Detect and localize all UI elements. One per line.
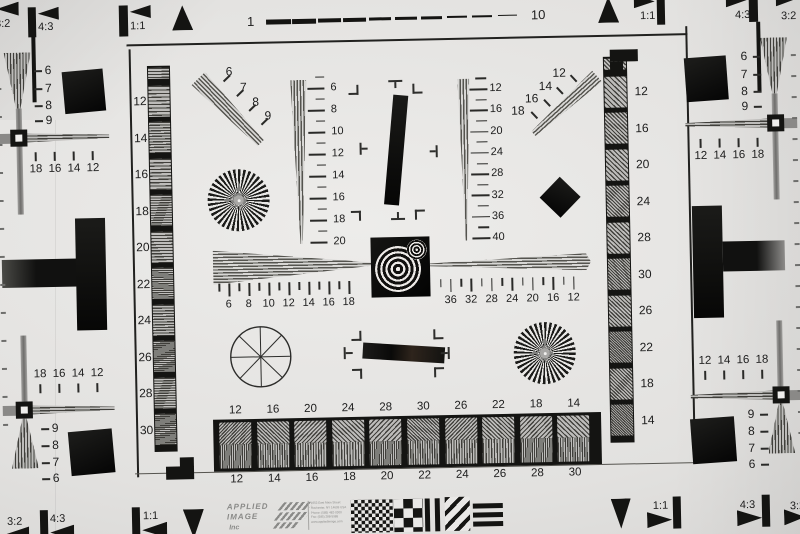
diagonal-wedge-upper-left (191, 71, 269, 150)
ladder-label: 12 (133, 94, 147, 108)
scale-label: 40 (492, 231, 504, 243)
scale-label: 16 (490, 103, 502, 115)
scale-tick (472, 195, 490, 197)
logo-address-line: Rochester, NY 14609 USA (311, 506, 347, 510)
scale-label: 10 (262, 298, 274, 310)
aspect-bar (119, 5, 129, 36)
corner-number-dash (42, 462, 50, 464)
scale-tick (552, 277, 554, 290)
cross-scale-tick (761, 370, 763, 379)
diag-scale-tick (531, 111, 538, 119)
scale-dash (369, 17, 391, 21)
scale-dash (318, 18, 342, 23)
t-shape-left-stem (2, 258, 79, 288)
logo-address-line: Fax: (585) 288-5989 (311, 516, 338, 520)
t-shape-right-bar (692, 206, 724, 319)
ladder-cell (606, 149, 629, 180)
scale-tick (258, 283, 260, 291)
scale-label: 12 (282, 297, 294, 309)
scale-tick (476, 99, 487, 101)
bar-label-top: 16 (266, 403, 279, 415)
scale-tick (309, 153, 326, 155)
bar-label-top: 28 (379, 401, 392, 413)
horizontal-bar-pattern (473, 503, 503, 509)
corner-number-dash (42, 445, 50, 447)
ladder-cell (152, 268, 174, 299)
t-mark (362, 148, 368, 150)
scale-tick (470, 109, 488, 111)
bar-cell-bottom (332, 442, 364, 467)
ladder-label: 26 (138, 350, 152, 364)
bracket-mark (359, 331, 361, 341)
diag-scale-label: 12 (552, 66, 566, 80)
aspect-triangle-icon (130, 5, 151, 18)
scale-label: 12 (332, 147, 344, 159)
aspect-label-11: 1:1 (143, 510, 159, 522)
ladder-key-right2 (610, 61, 623, 72)
corner-number: 6 (44, 63, 51, 77)
cross-scale-label: 18 (29, 163, 42, 175)
aspect-triangle-icon (38, 7, 59, 20)
edge-tick (791, 54, 796, 56)
t-mark (430, 150, 436, 152)
aspect-triangle-icon (634, 0, 655, 8)
vertical-wedge-center-right (456, 79, 473, 241)
scale-tick (470, 131, 488, 133)
corner-number: 9 (52, 421, 59, 435)
scale-tick (472, 237, 490, 239)
edge-tick (794, 222, 799, 224)
diag-scale-tick (570, 74, 577, 82)
up-triangle-icon (598, 0, 620, 23)
ladder-label: 30 (638, 266, 652, 280)
corner-number: 6 (53, 471, 60, 485)
top-ruler-start: 1 (247, 14, 255, 29)
ladder-cell (611, 404, 634, 435)
scale-label: 12 (567, 291, 579, 303)
cross-scale-label: 14 (67, 162, 80, 174)
edge-tick (0, 284, 5, 286)
edge-tick (792, 96, 797, 98)
corner-number: 8 (741, 84, 748, 98)
scale-tick (542, 277, 544, 285)
edge-tick (3, 396, 8, 398)
bar-label-bottom: 30 (569, 466, 582, 478)
aspect-label-43: 4:3 (38, 21, 54, 33)
chart-sheet: 3:2 4:3 1:1 1:1 4:3 3:2 1 10 3:2 4:3 1:1 (0, 0, 800, 534)
cross-center-square-inner (21, 406, 28, 413)
ladder-label: 12 (634, 84, 648, 98)
aspect-triangle-icon (50, 525, 74, 534)
scale-tick (288, 282, 290, 295)
scale-tick (471, 173, 489, 175)
bar-label-bottom: 26 (493, 468, 506, 480)
corner-number: 7 (748, 441, 755, 455)
scale-label: 10 (331, 125, 343, 137)
ladder-key-left2 (180, 457, 194, 467)
scale-label: 20 (526, 292, 538, 304)
scale-tick (481, 278, 483, 286)
bar-label-bottom: 12 (230, 473, 243, 485)
ladder-label: 22 (137, 277, 151, 291)
t-mark (448, 347, 450, 359)
slanted-bar-target-lower (362, 343, 445, 364)
bar-label-bottom: 18 (343, 471, 356, 483)
ladder-label: 20 (636, 157, 650, 171)
ladder-cell (153, 304, 175, 335)
top-ruler-end: 10 (531, 7, 546, 22)
bar-label-bottom: 16 (305, 472, 318, 484)
scale-tick (460, 279, 462, 287)
corner-number-dash (42, 478, 50, 480)
scale-tick (308, 131, 325, 133)
scale-tick (475, 78, 486, 80)
bar-cell-bottom (407, 440, 439, 465)
cross-scale-tick (54, 152, 56, 161)
scale-tick (470, 279, 472, 292)
ladder-cell (148, 68, 169, 79)
cross-scale-label: 12 (86, 162, 99, 174)
corner-number: 8 (45, 98, 52, 112)
scale-tick (298, 282, 300, 290)
edge-tick (2, 368, 7, 370)
scale-label: 14 (332, 169, 344, 181)
bar-label-top: 24 (342, 402, 355, 414)
scale-tick (308, 282, 310, 295)
bar-label-bottom: 24 (456, 469, 469, 481)
scale-tick (308, 109, 325, 111)
edge-tick (0, 116, 2, 118)
corner-number: 8 (748, 424, 755, 438)
scale-tick (307, 87, 324, 89)
bar-cell-top (557, 415, 589, 438)
aspect-bar (673, 496, 682, 528)
cross-scale-tick (96, 383, 98, 392)
edge-tick (793, 180, 798, 182)
bar-label-top: 30 (417, 400, 430, 412)
cross-arm-stem (20, 336, 27, 402)
bar-cell-top (257, 421, 289, 444)
logo-mark (274, 512, 311, 521)
corner-number-dash (34, 88, 42, 90)
corner-number: 6 (740, 49, 747, 63)
scale-label: 28 (491, 167, 503, 179)
cross-scale-label: 16 (736, 354, 749, 366)
scale-tick (238, 283, 240, 291)
scale-dash (421, 16, 442, 19)
scale-label: 36 (444, 294, 456, 306)
aspect-triangle-icon (776, 0, 796, 6)
cross-scale-label: 14 (717, 354, 730, 366)
cross-scale-label: 16 (732, 149, 745, 161)
checkerboard-fine (351, 499, 394, 533)
cross-center-square-inner (777, 391, 784, 398)
aspect-triangle-icon (737, 510, 762, 526)
bar-label-bottom: 20 (381, 470, 394, 482)
black-square-bottom-right (690, 416, 737, 464)
ladder-cell (148, 85, 170, 116)
t-mark (346, 352, 353, 354)
scale-label: 18 (333, 213, 345, 225)
corner-number-dash (753, 56, 761, 58)
scale-tick (310, 241, 327, 243)
corner-number-dash (761, 448, 769, 450)
cross-arm-fan (11, 418, 39, 469)
frame-line-top (126, 33, 687, 46)
scale-tick (248, 283, 250, 296)
bracket-mark (359, 211, 361, 221)
scale-tick (476, 120, 487, 122)
cross-scale-label: 18 (751, 149, 764, 161)
aspect-label-43: 4:3 (50, 513, 66, 525)
ladder-label: 28 (637, 230, 651, 244)
ladder-cell (605, 112, 628, 143)
edge-tick (793, 159, 798, 161)
edge-tick (791, 75, 796, 77)
ladder-cell (607, 222, 630, 253)
corner-number: 8 (52, 438, 59, 452)
cross-arm-horizontal (31, 402, 115, 416)
scale-tick (218, 284, 220, 292)
scale-label: 12 (489, 82, 501, 94)
scale-tick (511, 278, 513, 291)
bracket-mark (434, 367, 436, 377)
frame-line-left (129, 49, 140, 477)
t-mark (436, 145, 438, 157)
bar-cell-bottom (295, 443, 327, 468)
diag-scale-tick (544, 99, 551, 107)
cross-scale-tick (704, 371, 706, 380)
diagonal-stripe-pattern (445, 497, 471, 531)
bar-label-top: 14 (567, 397, 580, 409)
ladder-cell (609, 295, 632, 326)
bar-cell-bottom (558, 437, 590, 462)
edge-tick (1, 340, 6, 342)
ladder-label: 30 (140, 422, 154, 436)
cross-arm-fan (767, 403, 795, 454)
ladder-label: 28 (139, 386, 153, 400)
scale-tick (309, 175, 326, 177)
edge-tick (794, 201, 799, 203)
scale-tick (318, 208, 327, 209)
scale-dash (266, 19, 291, 25)
vertical-bar-pattern (435, 498, 441, 531)
cross-scale-tick (58, 384, 60, 393)
t-mark (391, 218, 405, 220)
aspect-label-32: 3:2 (790, 500, 800, 512)
scale-tick (478, 205, 489, 207)
ladder-label: 14 (641, 412, 655, 426)
aspect-bar (40, 510, 49, 534)
edge-tick (1, 312, 6, 314)
aspect-label-43: 4:3 (735, 9, 751, 21)
ladder-cell (608, 258, 631, 289)
diag-scale-label: 14 (539, 79, 553, 93)
cross-scale-tick (718, 139, 720, 148)
aspect-bar (657, 0, 666, 25)
cross-scale-tick (742, 370, 744, 379)
t-mark (441, 352, 448, 354)
scale-label: 8 (246, 298, 252, 310)
scale-dash (343, 18, 366, 22)
scale-tick (440, 279, 442, 287)
bar-cell-bottom (220, 444, 252, 469)
corner-number: 7 (741, 67, 748, 81)
cross-scale-tick (35, 152, 37, 161)
bar-cell-top (520, 416, 552, 439)
aspect-label-43: 4:3 (740, 499, 756, 511)
bar-label-bottom: 14 (268, 472, 281, 484)
edge-tick (792, 138, 797, 140)
corner-number-dash (35, 120, 43, 122)
scale-tick (469, 88, 487, 90)
corner-number: 9 (45, 113, 52, 127)
diag-scale-tick (556, 87, 563, 95)
cross-scale-tick (77, 383, 79, 392)
cross-scale-label: 14 (713, 149, 726, 161)
edge-tick (0, 256, 5, 258)
bar-label-top: 26 (454, 400, 467, 412)
scale-label: 28 (485, 293, 497, 305)
ladder-label: 22 (640, 339, 654, 353)
bar-label-top: 12 (229, 404, 242, 416)
bar-cell-top (445, 417, 477, 440)
ladder-label: 24 (138, 313, 152, 327)
scale-tick (228, 283, 230, 296)
scale-dash (447, 16, 467, 18)
ladder-cell (604, 76, 627, 107)
scale-dash (395, 17, 417, 20)
bar-cell-top (294, 421, 326, 444)
aspect-bar (762, 495, 771, 527)
cross-scale-label: 16 (53, 368, 66, 380)
down-triangle-icon (183, 509, 205, 534)
bracket-mark (360, 369, 362, 379)
aspect-label-32: 3:2 (7, 516, 23, 528)
scale-label: 6 (226, 298, 232, 310)
edge-tick (792, 117, 797, 119)
vertical-wedge-center-left (290, 80, 309, 244)
cross-scale-tick (699, 139, 701, 148)
scale-tick (315, 76, 324, 77)
cross-center-square-inner (15, 135, 22, 142)
cross-arm-fan (4, 52, 32, 109)
scale-tick (450, 279, 452, 292)
bracket-mark (433, 329, 435, 339)
scale-dash (472, 15, 491, 17)
cross-arm-stub (782, 118, 797, 128)
scale-label: 16 (332, 191, 344, 203)
ladder-cell (610, 368, 633, 399)
scale-tick (478, 227, 489, 229)
horizontal-bar-pattern (473, 512, 503, 518)
logo-address-line: 1653 East Main Street (311, 501, 341, 505)
cross-scale-label: 12 (698, 355, 711, 367)
scale-tick (316, 120, 325, 121)
edge-tick (796, 327, 800, 329)
scale-label: 20 (333, 235, 345, 247)
scale-tick (501, 278, 503, 286)
ladder-cell (151, 231, 173, 262)
cross-scale-tick (73, 152, 75, 161)
scale-label: 24 (491, 146, 503, 158)
cross-arm-fan (760, 37, 788, 94)
scale-label: 24 (506, 293, 518, 305)
ladder-cell (155, 414, 177, 445)
bar-cell-top (482, 417, 514, 440)
bar-cell-bottom (483, 439, 515, 464)
scale-tick (573, 276, 575, 289)
ladder-cell (150, 158, 172, 189)
cross-scale-tick (737, 138, 739, 147)
edge-tick (0, 88, 1, 90)
aspect-label-32: 3:2 (781, 10, 797, 22)
logo-address-line: www.appliedimage.com (311, 520, 343, 524)
scale-label: 18 (342, 296, 354, 308)
aspect-label-11: 1:1 (130, 20, 146, 32)
corner-number: 6 (749, 457, 756, 471)
bar-cell-bottom (445, 439, 477, 464)
scale-tick (318, 282, 320, 290)
edge-tick (0, 200, 4, 202)
up-triangle-icon (172, 5, 193, 30)
diag-scale-label: 18 (511, 103, 525, 117)
ladder-cell (609, 331, 632, 362)
logo-brand-1: APPLIED (227, 502, 269, 512)
black-square-bottom-left (68, 428, 116, 476)
ladder-label: 24 (637, 193, 651, 207)
bar-label-top: 20 (304, 403, 317, 415)
t-shape-right-stem (723, 240, 786, 271)
scale-tick (317, 186, 326, 187)
cross-arm-horizontal (685, 117, 769, 131)
black-diamond (540, 177, 581, 218)
aspect-triangle-icon (142, 522, 167, 534)
bar-cell-top (219, 422, 251, 445)
bar-cell-top (407, 418, 439, 441)
corner-number-dash (34, 70, 42, 72)
corner-number: 9 (741, 99, 748, 113)
bar-cell-bottom (370, 441, 402, 466)
bar-cell-top (332, 420, 364, 443)
ladder-label: 16 (635, 120, 649, 134)
bracket-mark (356, 85, 358, 95)
scale-tick (316, 142, 325, 143)
corner-number: 7 (52, 455, 59, 469)
scale-label: 32 (465, 293, 477, 305)
scale-label: 6 (330, 81, 336, 93)
scale-tick (316, 98, 325, 99)
cross-scale-label: 12 (91, 367, 104, 379)
checkerboard-coarse (394, 499, 424, 533)
corner-number-dash (760, 414, 768, 416)
cross-scale-tick (756, 138, 758, 147)
corner-number: 9 (748, 407, 755, 421)
logo-brand-3: Inc (229, 524, 239, 531)
corner-number-dash (41, 428, 49, 430)
scale-tick (317, 164, 326, 165)
scale-dash (498, 15, 517, 17)
aspect-bar (28, 7, 37, 37)
bar-cell-bottom (520, 438, 552, 463)
scale-label: 20 (490, 125, 502, 137)
ladder-cell (149, 122, 171, 153)
t-shape-left-bar (75, 218, 107, 331)
cross-scale-tick (92, 151, 94, 160)
cross-arm-stem (772, 93, 780, 199)
edge-tick (796, 306, 800, 308)
ladder-label: 20 (136, 240, 150, 254)
